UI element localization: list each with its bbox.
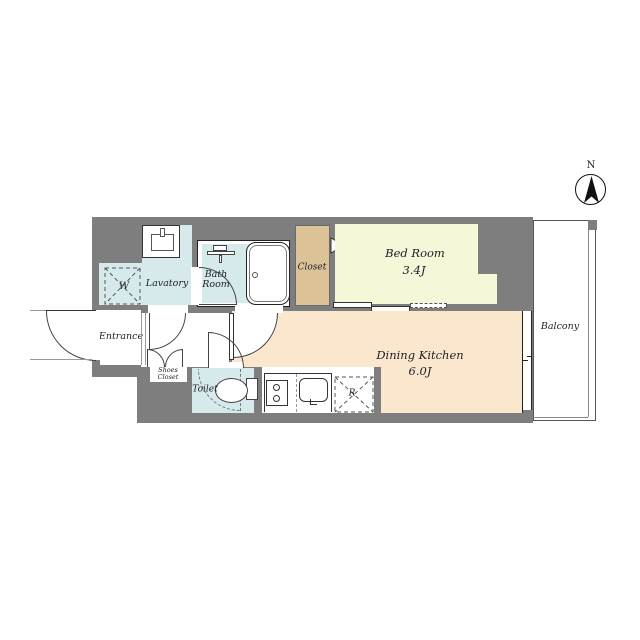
shower-stem-icon (219, 255, 222, 263)
refrigerator-label: R (349, 389, 356, 398)
dining-kitchen-label: Dining Kitchen (376, 349, 463, 361)
entrance-step-line-2 (145, 313, 146, 365)
compass-north-label: N (587, 161, 596, 172)
balcony-label: Balcony (541, 322, 579, 332)
front-door-swing-icon (46, 311, 96, 361)
vanity-tap-icon (160, 228, 165, 237)
toilet-bowl (215, 378, 248, 403)
kitchen-wall-stub (374, 367, 381, 413)
dk-window (522, 311, 532, 413)
porch-line-bottom (30, 359, 92, 360)
bedroom-size-label: 3.4J (403, 264, 426, 276)
stove-burner-2-icon (273, 395, 280, 402)
stove-burner-1-icon (273, 384, 280, 391)
floor-plan: Balcony Lavatory W Bath Room Closet Bed … (0, 0, 640, 640)
dining-kitchen-size-label: 6.0J (409, 365, 432, 377)
sliding-door-panel-1 (333, 302, 372, 308)
se-corner-column (523, 410, 533, 423)
balcony-inner-rail-line (588, 220, 589, 417)
lavatory-door-gap (148, 305, 188, 313)
bath-door-gap (191, 267, 199, 305)
dk-door-gap (235, 305, 283, 313)
porch-line-top (30, 310, 46, 311)
bedroom-label: Bed Room (385, 247, 445, 259)
kitchen-counter-dashed-divider (296, 374, 297, 412)
shoes-closet-label-line2: Closet (158, 373, 179, 381)
toilet-label: Toilet (192, 385, 217, 394)
bedroom-floor-step (478, 274, 497, 304)
balcony-corner-column (588, 220, 597, 230)
sliding-door-track-dashed (410, 303, 447, 308)
dk-window-slide-tick-2 (527, 356, 532, 357)
entrance-label: Entrance (99, 332, 143, 342)
entrance-step-line-1 (141, 313, 142, 365)
bathtub-drain-icon (252, 272, 258, 278)
washing-machine-label: W (119, 282, 129, 293)
dining-kitchen-floor-lower (381, 367, 523, 413)
lavatory-label: Lavatory (146, 279, 188, 289)
shoes-closet-label: Shoes Closet (158, 367, 179, 381)
closet-label: Closet (298, 263, 327, 272)
exterior-cutout (92, 377, 137, 423)
dk-window-slide-tick-1 (522, 360, 528, 361)
balcony-inner-bottom-line (533, 417, 588, 418)
kitchen-sink-tap-icon (310, 399, 317, 405)
